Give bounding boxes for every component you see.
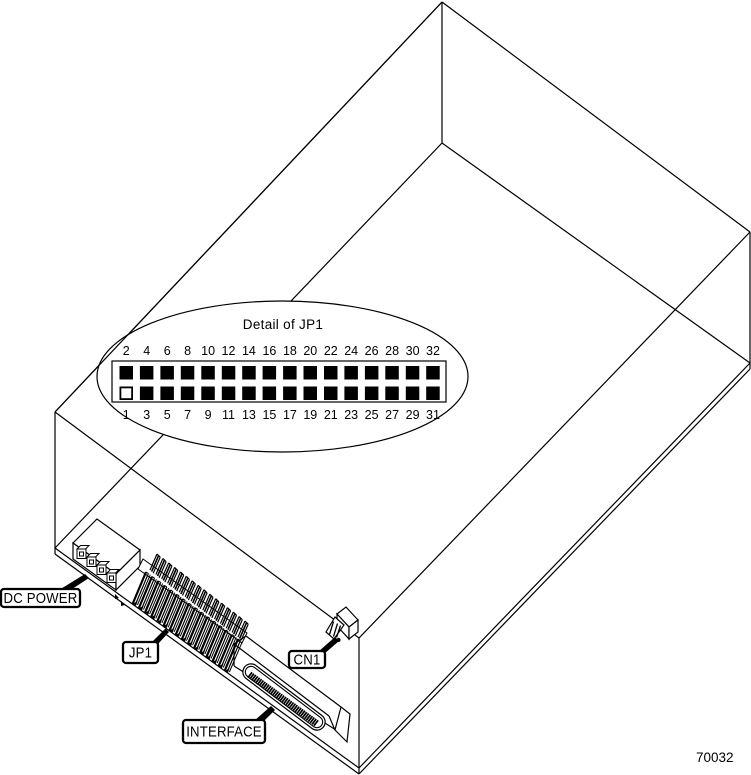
svg-text:70032: 70032 [696, 750, 734, 765]
svg-text:DC POWER: DC POWER [4, 589, 78, 606]
svg-text:CN1: CN1 [294, 651, 321, 668]
svg-text:Detail of JP1: Detail of JP1 [243, 317, 323, 332]
svg-text:INTERFACE: INTERFACE [186, 723, 262, 740]
svg-text:JP1: JP1 [129, 644, 152, 661]
